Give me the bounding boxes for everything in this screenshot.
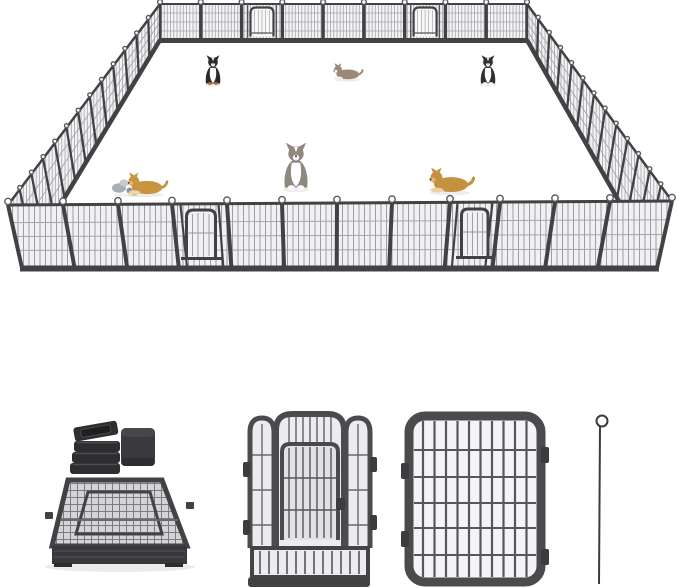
dog-golden-retriever xyxy=(429,167,473,195)
door-latch xyxy=(336,498,345,510)
back-wall-mesh xyxy=(160,4,527,42)
dogs xyxy=(112,55,496,197)
detail-items xyxy=(45,414,608,587)
dog-golden-retriever-puppy xyxy=(128,172,167,197)
folded-panel-stack xyxy=(45,480,195,572)
dog-husky-sitting xyxy=(283,143,309,193)
dog-bernese-mountain-dog xyxy=(205,55,221,86)
corner-cap xyxy=(121,428,155,466)
tube-caps-stack xyxy=(70,420,120,474)
product-image xyxy=(0,0,679,588)
ground-stake xyxy=(597,416,608,585)
playpen xyxy=(5,0,675,268)
door-panel-detail xyxy=(243,414,377,587)
back-wall xyxy=(158,0,530,43)
front-wall xyxy=(5,194,675,268)
product-illustration xyxy=(0,0,679,588)
single-panel-detail xyxy=(401,416,549,582)
back-wall-bottom-rail xyxy=(158,38,529,43)
dog-husky-lying xyxy=(333,63,362,81)
dog-border-collie xyxy=(480,55,496,86)
back-door-panel-left xyxy=(248,4,277,38)
back-door-panel-right xyxy=(411,4,440,38)
